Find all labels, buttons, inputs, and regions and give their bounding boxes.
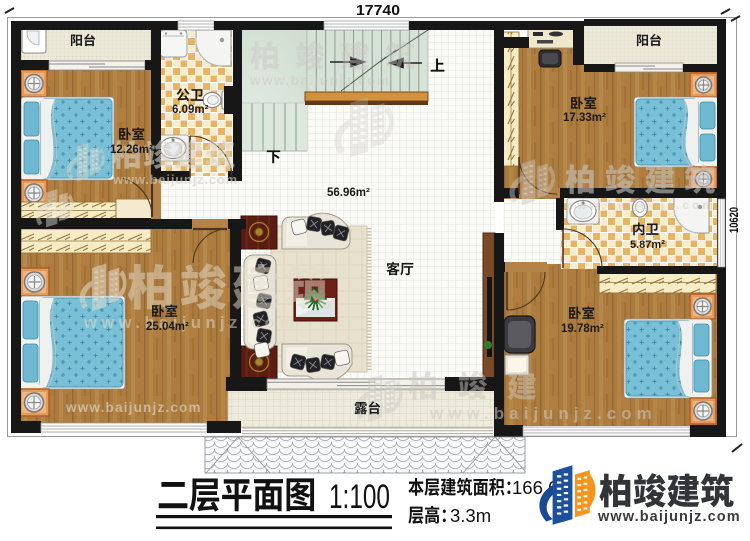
svg-text:17740: 17740: [356, 3, 400, 19]
svg-text:www.baijunjz.com: www.baijunjz.com: [112, 172, 238, 187]
svg-text:12.26m²: 12.26m²: [110, 144, 153, 156]
svg-text:www.baijunjz.com: www.baijunjz.com: [429, 404, 657, 423]
svg-text:www.baijunjz.com: www.baijunjz.com: [83, 314, 298, 332]
svg-text:www.baijunjz.com: www.baijunjz.com: [65, 400, 202, 415]
svg-text:17.33m²: 17.33m²: [563, 112, 606, 124]
svg-text:w w w . b a i j u n j z . c o: w w w . b a i j u n j z . c o m: [564, 200, 713, 212]
svg-text:1:100: 1:100: [329, 478, 390, 516]
svg-text:www.baijunjz.com: www.baijunjz.com: [597, 509, 741, 525]
svg-text:5.87m²: 5.87m²: [630, 239, 665, 251]
svg-text:56.96m²: 56.96m²: [327, 187, 370, 199]
svg-text:6.09m²: 6.09m²: [172, 104, 209, 116]
svg-text:10620: 10620: [727, 207, 741, 233]
svg-text:www.baijunjz.com: www.baijunjz.com: [249, 73, 391, 88]
svg-text:19.78m²: 19.78m²: [561, 323, 604, 335]
svg-text:3.3m: 3.3m: [450, 505, 491, 526]
svg-text:25.04m²: 25.04m²: [146, 321, 189, 333]
